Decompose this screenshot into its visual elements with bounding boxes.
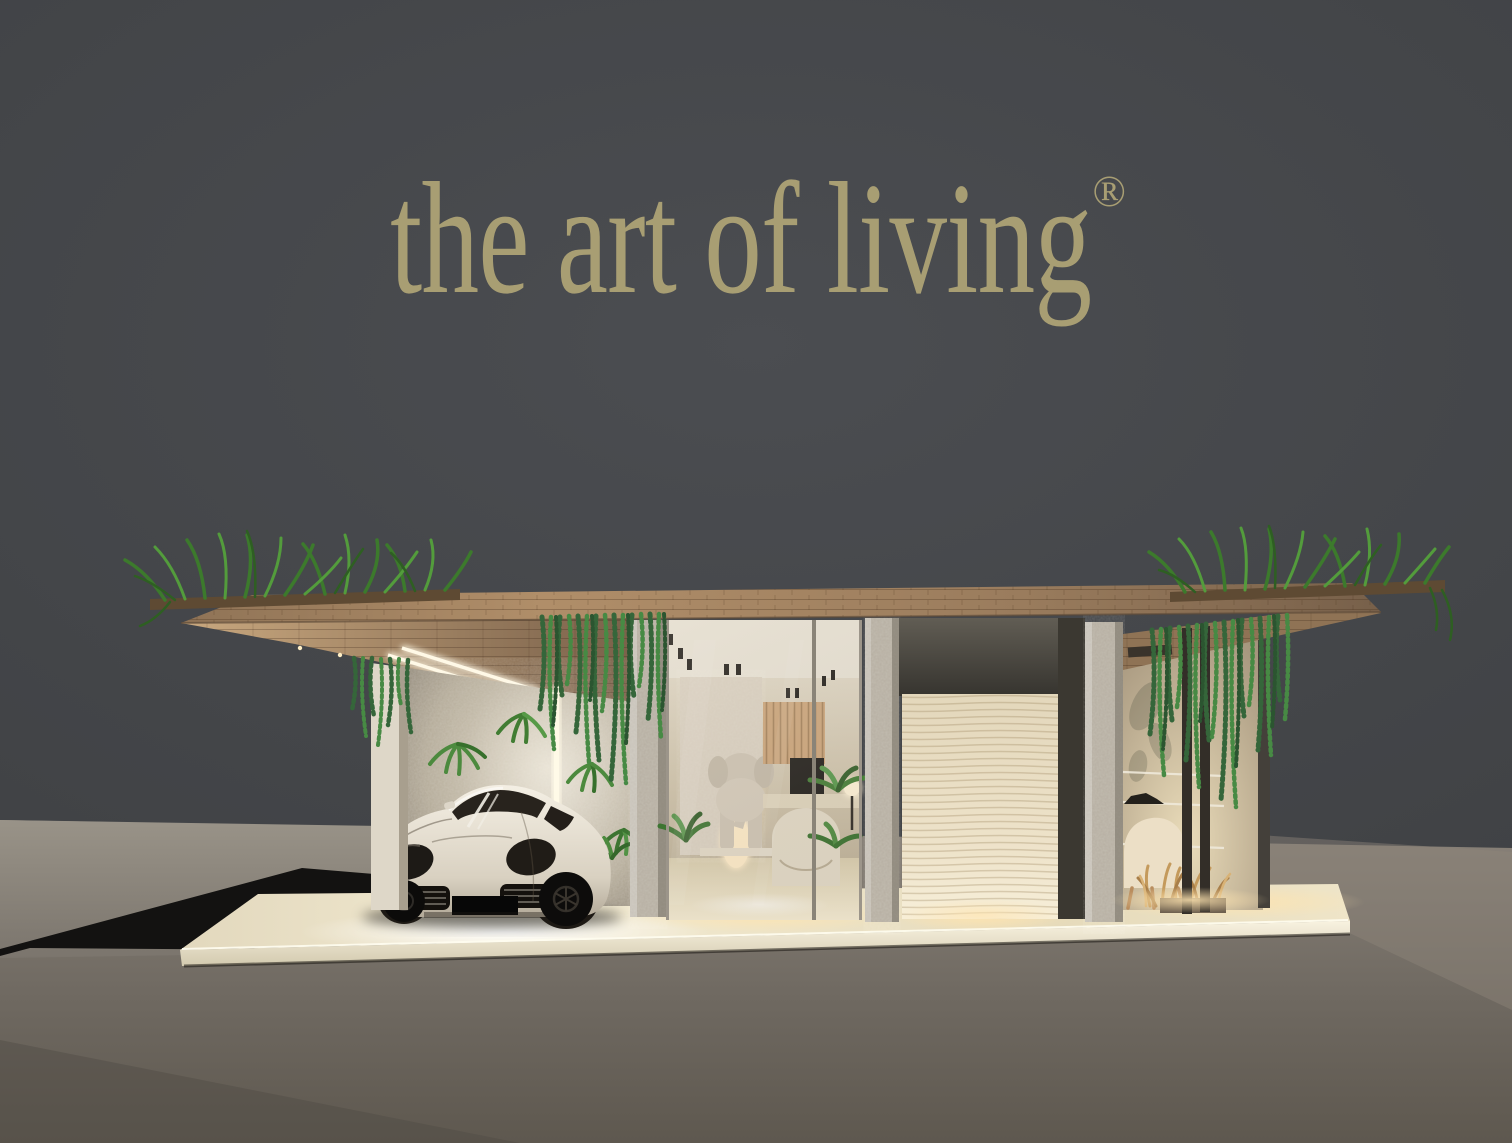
stone-column-carport [630,620,666,917]
stone-pillar-right [1085,622,1123,922]
pavilion-render [0,0,1512,1143]
textured-panel-bay [895,618,1085,931]
glass-facade [666,620,862,920]
panel-recess [899,618,1059,696]
car-wheel-rear [539,872,593,926]
render-canvas: the art of living® [0,0,1512,1143]
stone-column-middle [865,618,899,922]
